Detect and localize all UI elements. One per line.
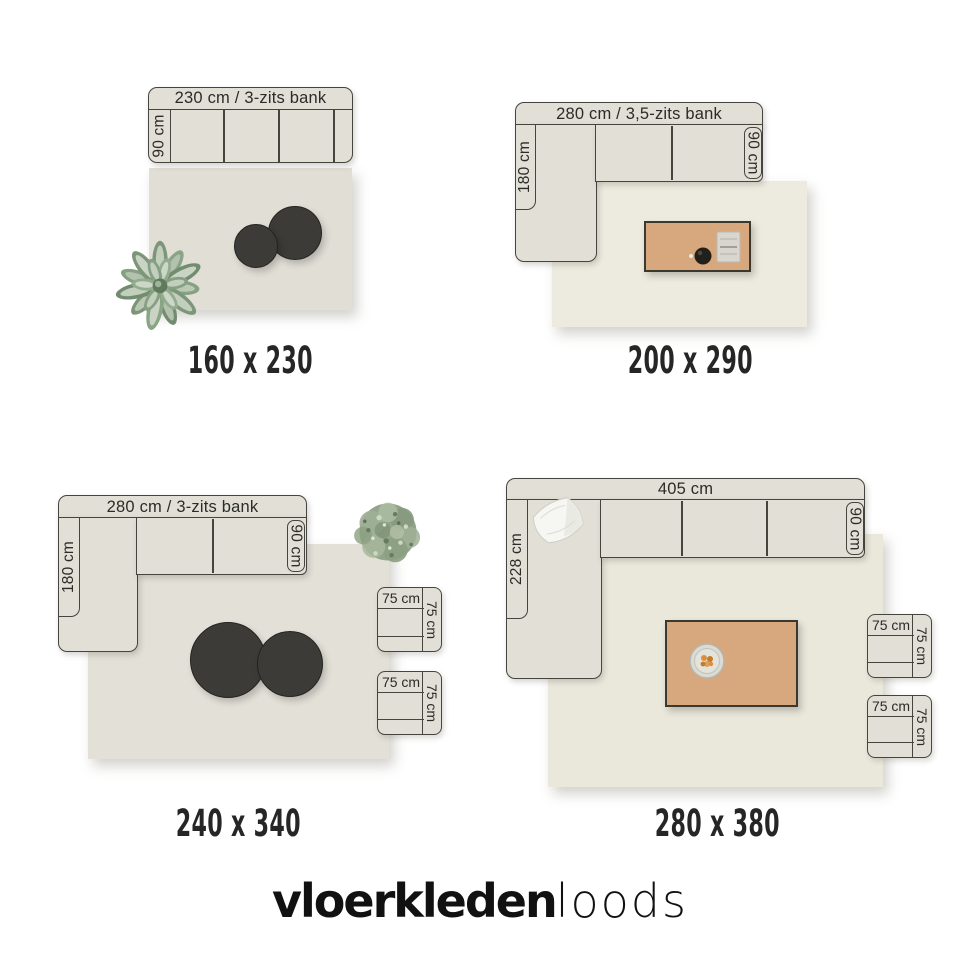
chair-width-label: 75 cm [868, 615, 914, 636]
coffee-table [665, 620, 798, 707]
chair-width-label: 75 cm [378, 672, 424, 693]
round-side-table-small [234, 224, 278, 268]
table-decor [667, 622, 796, 705]
chair-width-label: 75 cm [868, 696, 914, 717]
chaise-depth-label: 180 cm [517, 141, 535, 193]
round-coffee-table-large [190, 622, 266, 698]
sofa-seats [136, 517, 307, 575]
brand-logo: vloerkledenloods [0, 874, 960, 928]
round-coffee-table-small [257, 631, 323, 697]
sofa-backrest-label: 280 cm / 3-zits bank [107, 498, 259, 517]
sofa-seat-divider [278, 110, 280, 162]
chair-front-line [868, 662, 914, 663]
rug-size-label: 160 x 230 [140, 339, 360, 382]
sofa-depth-label: 90 cm [744, 131, 762, 174]
coffee-table [644, 221, 751, 272]
sofa-seat-divider [671, 126, 673, 180]
armchair: 75 cm 75 cm [377, 587, 442, 652]
sofa-backrest: 280 cm / 3-zits bank [58, 495, 307, 519]
chair-depth-label: 75 cm [914, 707, 930, 745]
sofa-3-seats: 230 cm / 3-zits bank 90 cm [148, 87, 353, 163]
sofa-seats [595, 124, 763, 182]
armchair: 75 cm 75 cm [867, 614, 932, 678]
sofa-depth-label: 90 cm [287, 524, 305, 567]
brand-logo-light: loods [556, 874, 688, 928]
chair-front-line [378, 636, 424, 637]
sofa-depth-label: 90 cm [151, 114, 169, 157]
sofa-backrest-label: 280 cm / 3,5-zits bank [556, 105, 722, 124]
armchair: 75 cm 75 cm [867, 695, 932, 758]
rug-size-guide: 230 cm / 3-zits bank 90 cm [0, 0, 960, 960]
pillow-icon [522, 487, 592, 553]
chair-depth-label: 75 cm [424, 600, 440, 638]
rug-size-label: 240 x 340 [128, 802, 348, 845]
chair-depth-label: 75 cm [914, 627, 930, 665]
chair-front-line [868, 742, 914, 743]
brand-logo-bold: vloerkleden [272, 874, 556, 928]
sofa-seat-divider [681, 501, 683, 556]
plant-icon [343, 491, 433, 573]
sofa-backrest-label: 230 cm / 3-zits bank [149, 88, 352, 110]
rug-size-label: 200 x 290 [580, 339, 800, 382]
rug-size-label: 280 x 380 [607, 802, 827, 845]
chair-width-label: 75 cm [378, 588, 424, 609]
sofa-seat-divider [212, 519, 214, 573]
sofa-seats [600, 499, 865, 558]
sofa-depth-label: 90 cm [846, 507, 864, 550]
chair-front-line [378, 719, 424, 720]
sofa-backrest: 280 cm / 3,5-zits bank [515, 102, 763, 126]
sofa-seat-divider [223, 110, 225, 162]
armchair: 75 cm 75 cm [377, 671, 442, 735]
table-decor [646, 223, 749, 270]
sofa-seat-divider [766, 501, 768, 556]
sofa-seat-divider [333, 110, 335, 162]
plant-icon [111, 238, 209, 330]
chair-depth-label: 75 cm [424, 684, 440, 722]
chaise-depth-label: 180 cm [60, 541, 78, 593]
sofa-backrest-label: 405 cm [658, 480, 713, 499]
